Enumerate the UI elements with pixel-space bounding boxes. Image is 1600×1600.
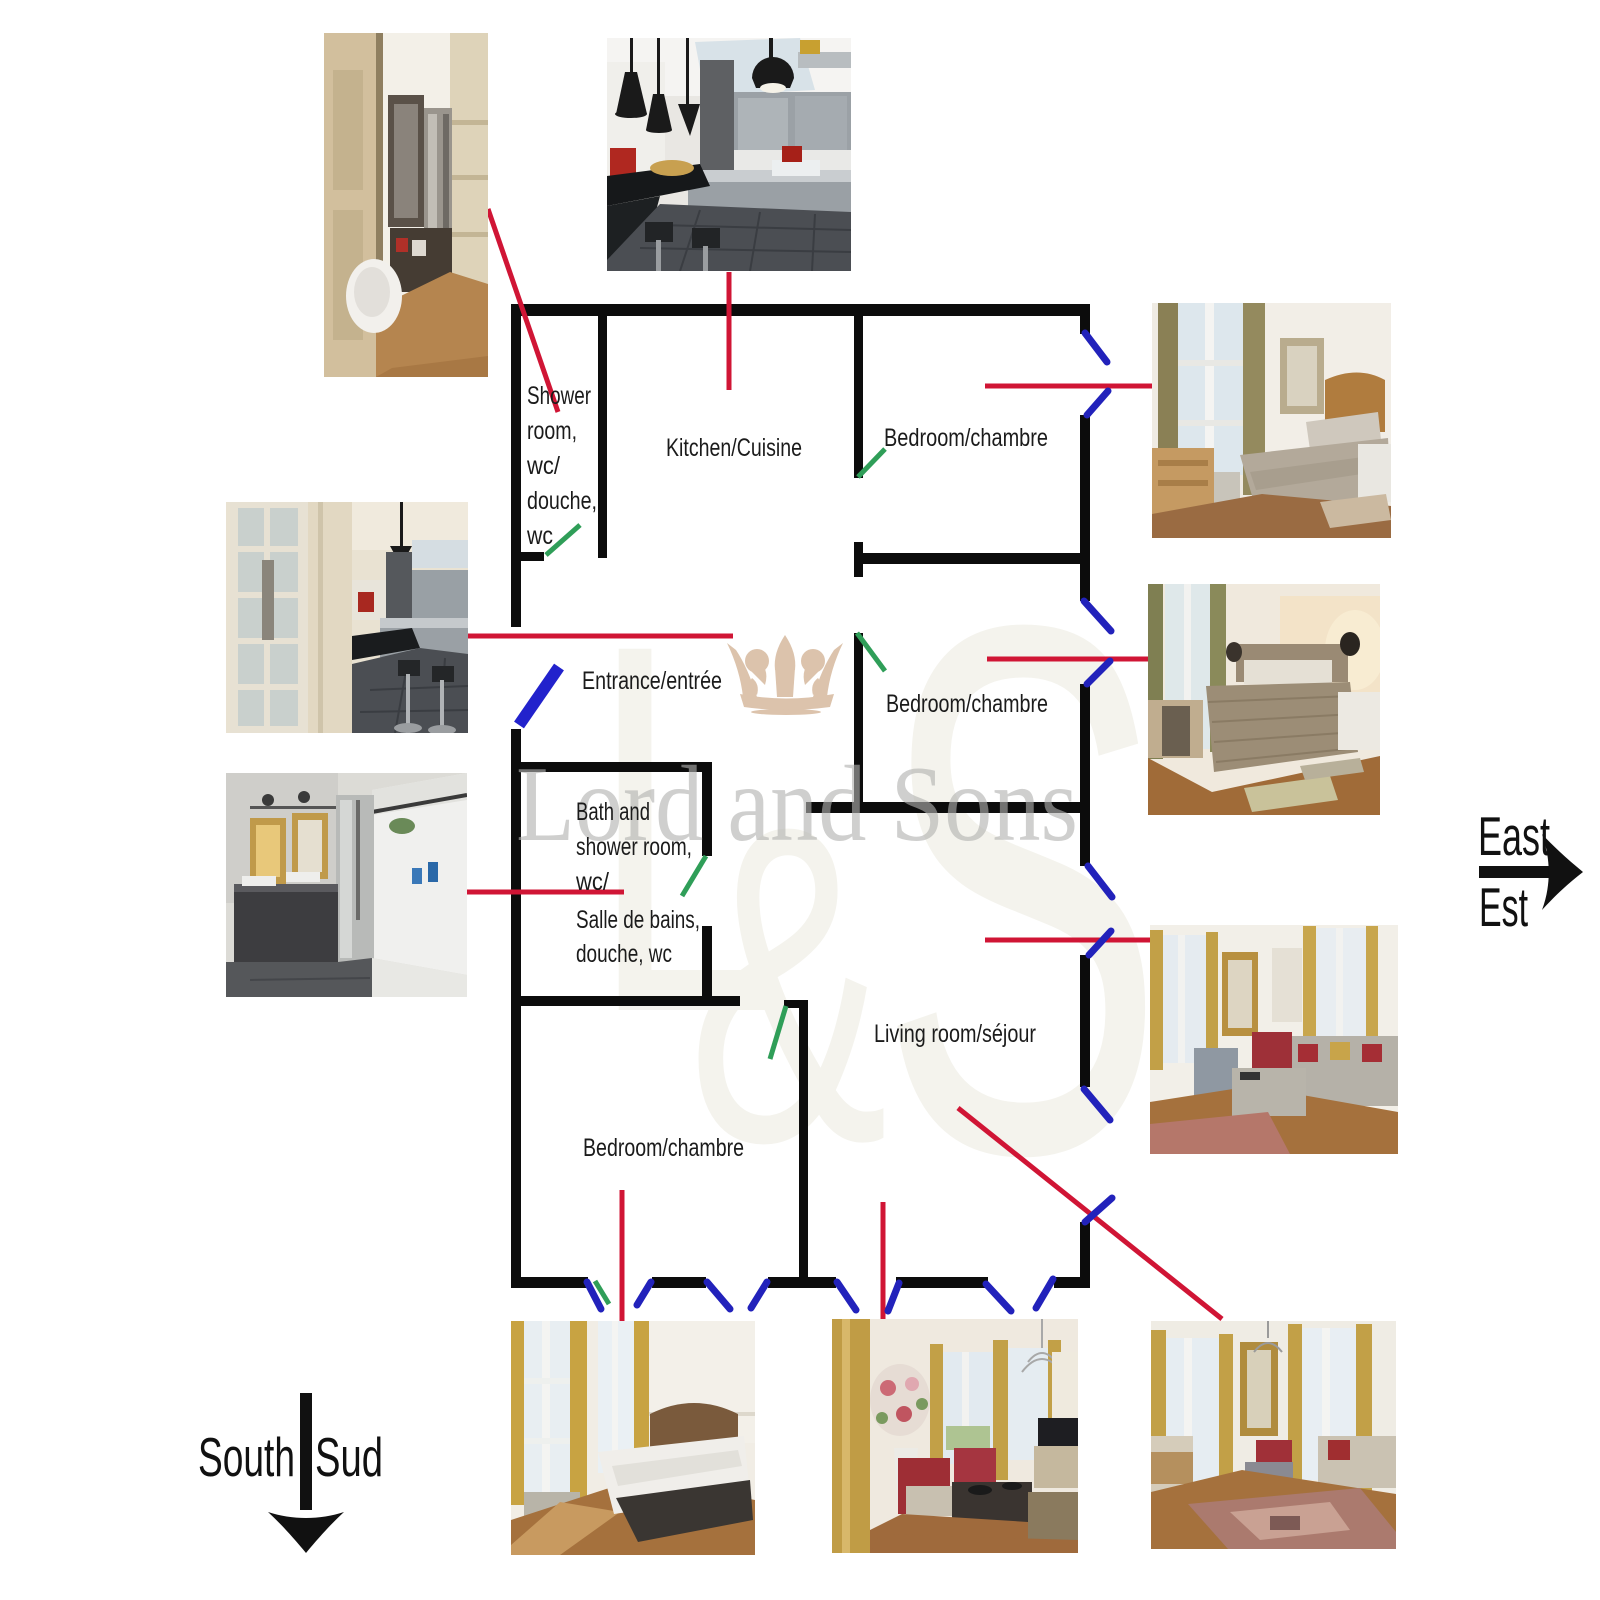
svg-text:shower room,: shower room, [576,833,692,861]
svg-text:South: South [198,1426,295,1488]
svg-text:East: East [1478,805,1550,867]
svg-text:wc: wc [526,522,553,550]
svg-text:wc/: wc/ [575,868,609,896]
svg-text:Kitchen/Cuisine: Kitchen/Cuisine [666,434,802,462]
svg-text:Bedroom/chambre: Bedroom/chambre [886,690,1048,718]
svg-text:Living room/séjour: Living room/séjour [874,1020,1036,1048]
svg-text:Bath and: Bath and [576,798,650,826]
svg-text:Entrance/entrée: Entrance/entrée [582,667,722,695]
svg-text:room,: room, [527,417,577,445]
svg-text:douche,: douche, [527,487,597,515]
svg-text:douche, wc: douche, wc [576,940,672,968]
svg-text:wc/: wc/ [526,452,560,480]
svg-text:Bedroom/chambre: Bedroom/chambre [884,424,1048,452]
svg-text:S: S [878,469,1165,1310]
svg-text:Shower: Shower [527,382,591,410]
svg-text:Sud: Sud [315,1426,383,1488]
svg-text:Salle de bains,: Salle de bains, [576,906,700,934]
svg-text:Est: Est [1479,876,1528,938]
svg-text:Bedroom/chambre: Bedroom/chambre [583,1134,744,1162]
